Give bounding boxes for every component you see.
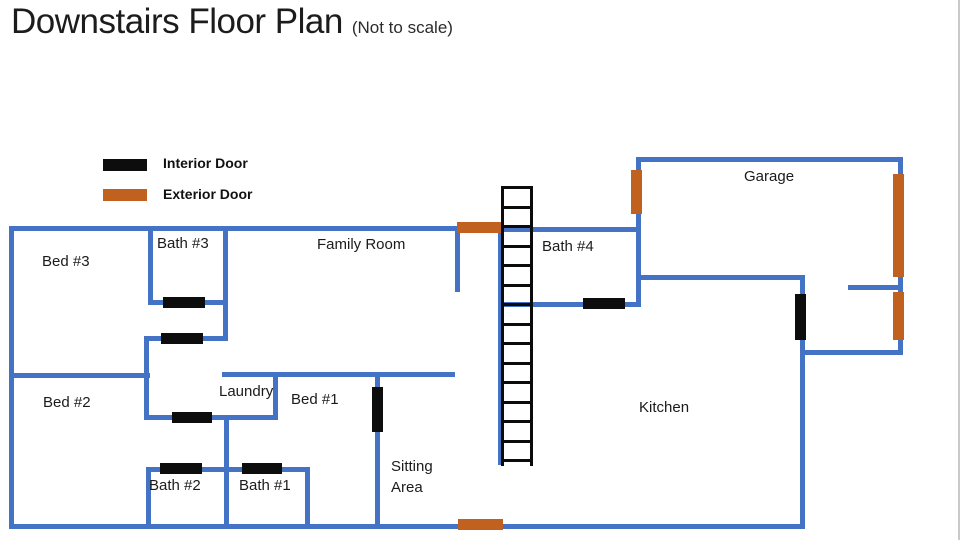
- room-label-laundry: Laundry: [219, 383, 273, 400]
- room-label-bath1: Bath #1: [239, 477, 291, 494]
- interior-door: [160, 463, 202, 474]
- room-label-bath3: Bath #3: [157, 235, 209, 252]
- stairs-rung: [501, 401, 533, 404]
- wall-segment: [148, 226, 153, 303]
- wall-segment: [223, 226, 228, 341]
- interior-door: [172, 412, 212, 423]
- room-label-family: Family Room: [317, 236, 405, 253]
- wall-segment: [636, 275, 805, 280]
- floor-plan-slide: Downstairs Floor Plan(Not to scale) Inte…: [0, 0, 960, 540]
- stairs-rung: [501, 264, 533, 267]
- exterior-door-legend-label: Exterior Door: [163, 186, 252, 202]
- stairs-rung: [501, 323, 533, 326]
- interior-door: [372, 387, 383, 432]
- interior-door-swatch: [103, 159, 147, 171]
- stairs-rung: [501, 459, 533, 462]
- wall-segment: [800, 350, 903, 355]
- wall-segment: [222, 372, 455, 377]
- wall-segment: [636, 157, 903, 162]
- wall-segment: [305, 467, 310, 529]
- exterior-door-swatch: [103, 189, 147, 201]
- interior-door-legend-label: Interior Door: [163, 155, 248, 171]
- wall-segment: [9, 226, 460, 231]
- wall-segment: [455, 226, 460, 292]
- room-label-sitting-area: Sitting Area: [391, 456, 449, 498]
- room-label-bed1: Bed #1: [291, 391, 339, 408]
- page-title: Downstairs Floor Plan(Not to scale): [11, 2, 453, 42]
- wall-segment: [848, 285, 898, 290]
- interior-door: [795, 294, 806, 340]
- exterior-door: [458, 519, 503, 530]
- stairs-rung: [501, 206, 533, 209]
- room-label-kitchen: Kitchen: [639, 399, 689, 416]
- stairs-rung: [501, 284, 533, 287]
- room-label-bath2: Bath #2: [149, 477, 201, 494]
- interior-door: [583, 298, 625, 309]
- wall-segment: [9, 226, 14, 529]
- stairs-rung: [501, 420, 533, 423]
- interior-door: [242, 463, 282, 474]
- wall-segment: [144, 336, 149, 420]
- subtitle-text: (Not to scale): [352, 18, 453, 37]
- interior-door: [163, 297, 205, 308]
- stairs-rung: [501, 342, 533, 345]
- room-label-bath4: Bath #4: [542, 238, 594, 255]
- wall-segment: [273, 372, 278, 420]
- room-label-garage: Garage: [744, 168, 794, 185]
- title-text: Downstairs Floor Plan: [11, 2, 343, 41]
- stairs-rung: [501, 186, 533, 189]
- stairs-rung: [501, 245, 533, 248]
- wall-segment: [9, 524, 805, 529]
- room-label-bed3: Bed #3: [42, 253, 90, 270]
- interior-door: [161, 333, 203, 344]
- exterior-door: [893, 292, 904, 340]
- stairs-rail: [501, 186, 504, 466]
- stairs-rung: [501, 225, 533, 228]
- stairs-rung: [501, 362, 533, 365]
- stairs-rail: [530, 186, 533, 466]
- exterior-door: [457, 222, 502, 233]
- room-label-bed2: Bed #2: [43, 394, 91, 411]
- exterior-door: [893, 174, 904, 277]
- stairs-icon: [501, 186, 533, 466]
- wall-segment: [224, 415, 229, 529]
- exterior-door: [631, 170, 642, 214]
- stairs-rung: [501, 381, 533, 384]
- wall-segment: [9, 373, 150, 378]
- stairs-rung: [501, 303, 533, 306]
- stairs-rung: [501, 440, 533, 443]
